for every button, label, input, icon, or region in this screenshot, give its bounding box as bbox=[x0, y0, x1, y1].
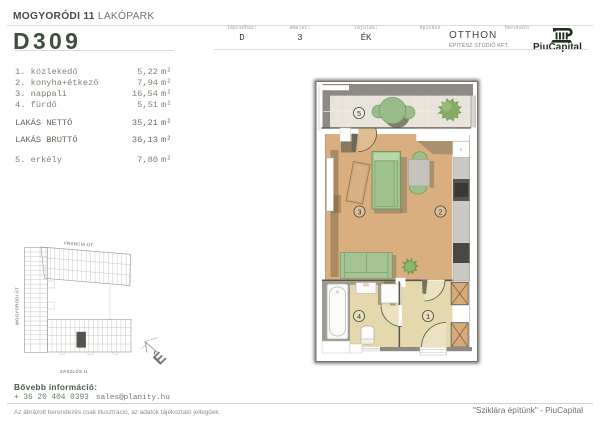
svg-text:3: 3 bbox=[357, 210, 361, 218]
svg-text:4: 4 bbox=[357, 314, 361, 322]
svg-text:2: 2 bbox=[438, 210, 442, 218]
svg-text:1: 1 bbox=[426, 314, 430, 322]
svg-text:5: 5 bbox=[357, 111, 361, 119]
svg-text:FRANCIA ÚT: FRANCIA ÚT bbox=[64, 241, 94, 248]
svg-text:×: × bbox=[459, 148, 462, 154]
svg-text:MOGYORÓDI ÚT: MOGYORÓDI ÚT bbox=[15, 287, 20, 325]
svg-text:ZÁSZLÓS U.: ZÁSZLÓS U. bbox=[60, 369, 89, 374]
svg-text:É: É bbox=[150, 349, 169, 368]
